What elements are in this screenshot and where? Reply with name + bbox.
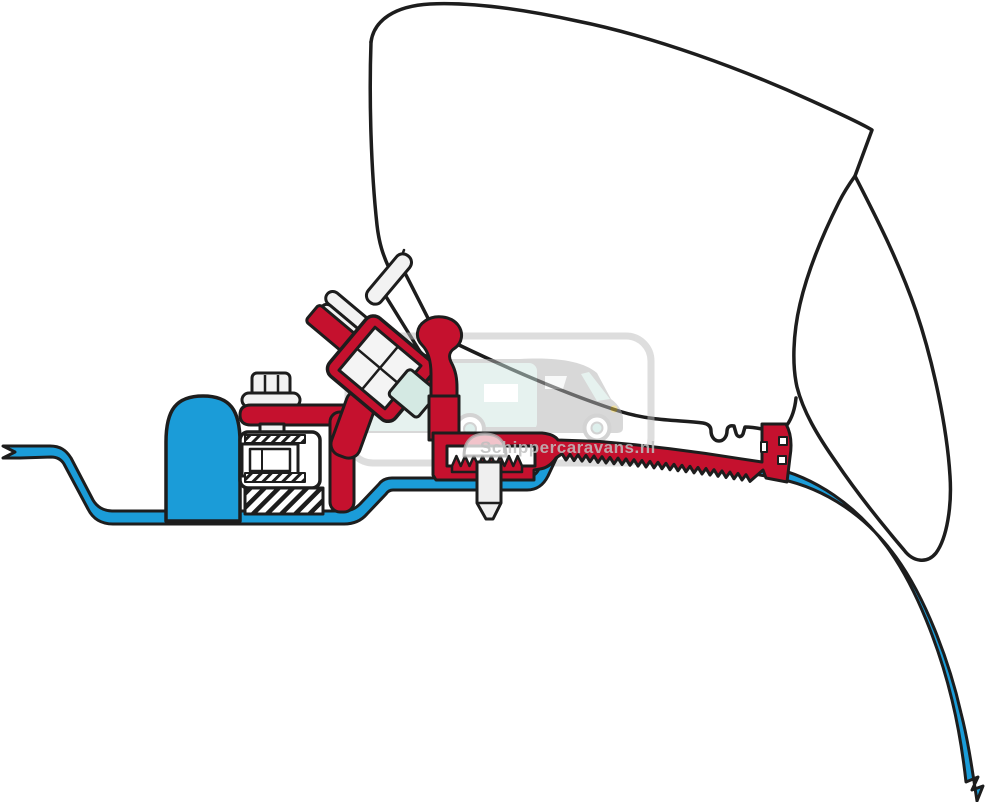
van-headlight (611, 406, 618, 413)
case-bottom-edge-right (787, 398, 796, 425)
watermark-overlay: Schippercaravans.nl (464, 434, 656, 457)
awning-adapter-diagram: Schippercaravans.nl (0, 0, 1000, 802)
diagram-canvas: Schippercaravans.nl (0, 0, 1000, 802)
clamp-pad-bottom (245, 473, 305, 482)
clamp-rail-section (250, 449, 290, 471)
endcap-notch-1 (779, 437, 787, 445)
fixing-screw (477, 462, 501, 519)
endcap-notch-2 (778, 456, 786, 464)
endcap-notch-3 (761, 442, 767, 452)
case-top-edge (371, 4, 872, 176)
case-front-edge (370, 42, 389, 268)
clamp-pad-top (245, 435, 305, 443)
spacer-block-hatched (245, 488, 323, 514)
case-right-lobe (794, 176, 951, 560)
van-side-window (484, 384, 518, 402)
watermark-text: Schippercaravans.nl (480, 438, 656, 457)
roof-dome (166, 396, 240, 521)
van-front-wheel (585, 416, 610, 441)
